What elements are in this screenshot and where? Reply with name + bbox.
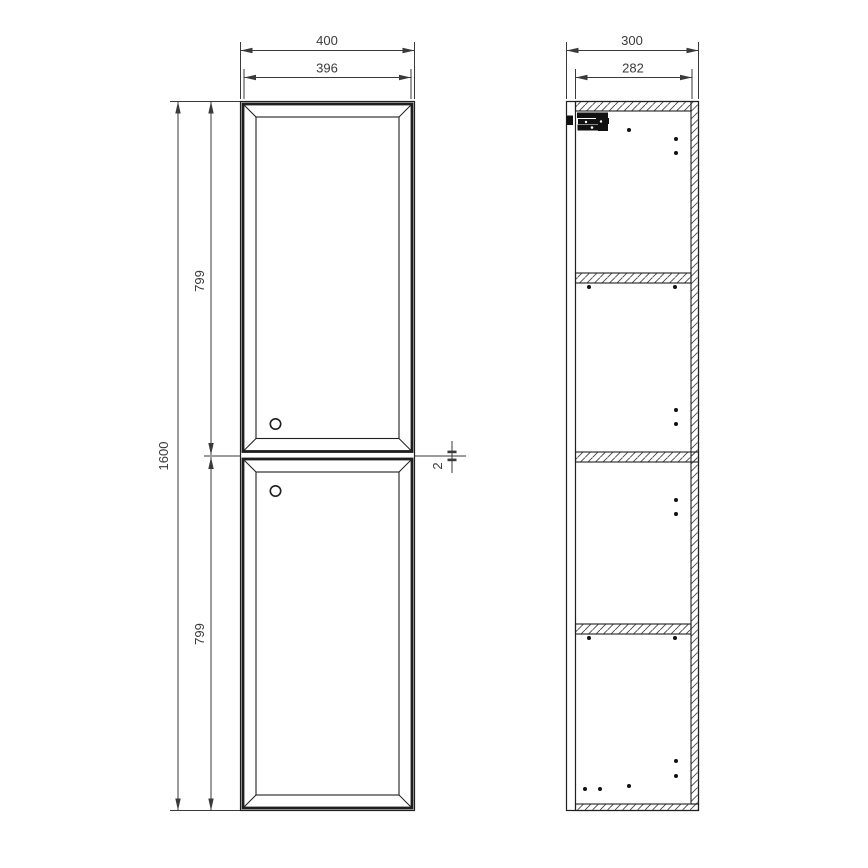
drill-hole [627, 128, 631, 132]
drill-hole [583, 787, 587, 791]
shelf-upper [576, 273, 692, 283]
drill-hole [674, 422, 678, 426]
dim-label-799-lower: 799 [192, 623, 207, 645]
upper-door-bevel-br [399, 439, 411, 451]
dim-label-396: 396 [316, 61, 338, 76]
upper-door [243, 104, 412, 452]
dim-label-282: 282 [622, 61, 644, 76]
lower-door-bevel-tl [244, 460, 256, 472]
drill-hole [674, 137, 678, 141]
drill-hole [674, 151, 678, 155]
drill-hole [674, 512, 678, 516]
upper-door-edge [243, 104, 412, 452]
drill-hole [673, 285, 677, 289]
front-carcass-outline [241, 102, 415, 811]
drill-hole [627, 784, 631, 788]
dim-label-1600: 1600 [156, 442, 171, 471]
dim-label-2: 2 [430, 462, 445, 469]
dim-label-799-upper: 799 [192, 270, 207, 292]
lower-door-bevel-br [399, 795, 411, 807]
upper-door-bevel-tl [244, 105, 256, 117]
shelf-lower [576, 624, 692, 634]
upper-door-panel [256, 117, 399, 439]
lower-door [243, 459, 412, 808]
drill-hole [674, 498, 678, 502]
lower-door-edge [243, 459, 412, 808]
front-view [241, 102, 415, 811]
dim-front-width-inner: 396 [244, 61, 411, 100]
bottom-panel [576, 804, 699, 811]
upper-door-bevel-tr [399, 105, 411, 117]
drill-hole [674, 774, 678, 778]
cabinet-technical-drawing: 400 396 300 282 1600 [0, 0, 868, 868]
dim-label-300: 300 [621, 33, 643, 48]
top-panel [576, 102, 692, 112]
drill-hole [587, 285, 591, 289]
dim-door-gap: 2 [415, 441, 467, 473]
dimensions: 400 396 300 282 1600 [156, 33, 699, 811]
upper-door-knob [270, 419, 280, 429]
lower-door-knob [270, 486, 280, 496]
lower-door-bevel-tr [399, 460, 411, 472]
drill-hole [674, 408, 678, 412]
dim-label-400: 400 [316, 33, 338, 48]
drill-hole [674, 759, 678, 763]
upper-door-bevel-bl [244, 439, 256, 451]
drill-hole [673, 636, 677, 640]
side-view [567, 102, 699, 811]
drill-hole [587, 636, 591, 640]
dim-side-depth-inner: 282 [576, 61, 693, 100]
lower-door-bevel-bl [244, 795, 256, 807]
hinge-icon [567, 113, 610, 132]
dim-front-heights: 1600 799 799 [156, 102, 240, 811]
drill-hole [598, 787, 602, 791]
lower-door-panel [256, 472, 399, 795]
technical-drawing-page: 400 396 300 282 1600 [0, 0, 868, 868]
middle-divider [576, 452, 699, 462]
